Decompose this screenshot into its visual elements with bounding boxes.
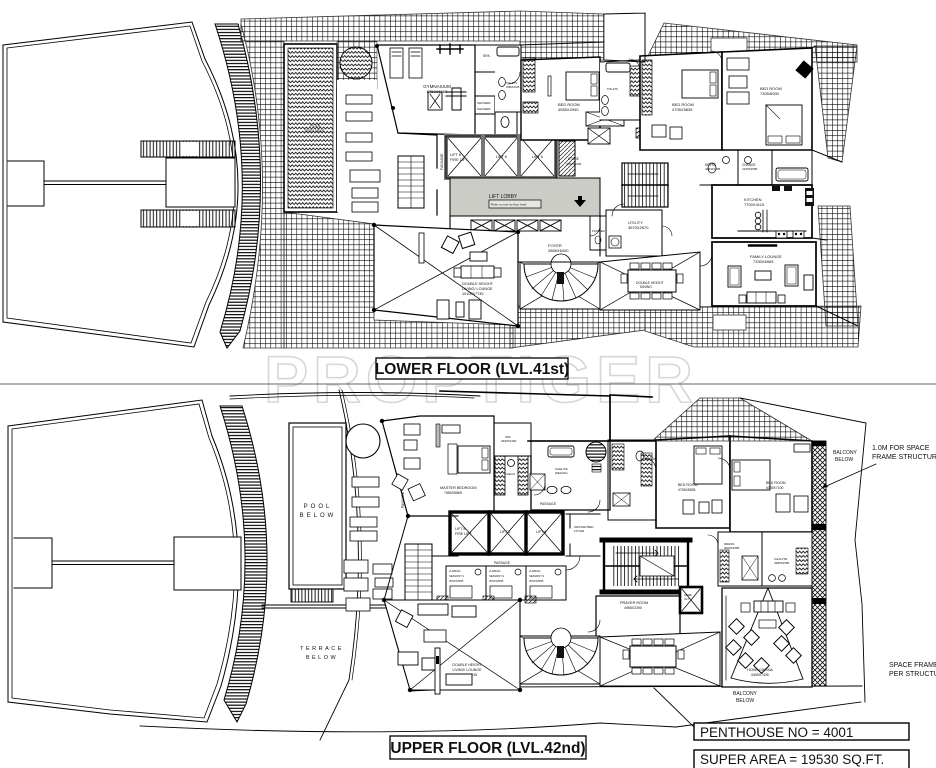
svg-text:BED ROOM: BED ROOM	[766, 481, 786, 485]
svg-text:WEILING: WEILING	[555, 471, 568, 475]
svg-text:3484X1585: 3484X1585	[705, 167, 721, 171]
svg-text:CHE/CO: CHE/CO	[505, 472, 515, 476]
svg-text:LIVING/ LOUNGE: LIVING/ LOUNGE	[462, 287, 493, 291]
svg-text:BED ROOM: BED ROOM	[678, 483, 698, 487]
svg-text:SERVANT 1: SERVANT 1	[449, 574, 465, 578]
svg-text:BALCONY: BALCONY	[733, 691, 758, 697]
svg-text:POWDER: POWDER	[592, 229, 605, 233]
svg-text:HOME: HOME	[684, 593, 692, 597]
svg-text:2515X2595: 2515X2595	[489, 579, 504, 583]
svg-text:SERVANT 3: SERVANT 3	[529, 574, 545, 578]
svg-text:PER STRUCTURE: PER STRUCTURE	[889, 671, 936, 678]
svg-text:7700X4115: 7700X4115	[744, 202, 765, 207]
svg-text:FOYER: FOYER	[574, 529, 585, 533]
svg-text:7500X18000: 7500X18000	[304, 129, 324, 133]
svg-text:FRAME STRUCTURE: FRAME STRUCTURE	[872, 454, 936, 461]
svg-text:3400X2400: 3400X2400	[501, 439, 517, 443]
svg-text:HOME CINEMA: HOME CINEMA	[747, 668, 773, 672]
svg-text:SHOWER: SHOWER	[477, 101, 491, 105]
svg-text:LUMINAI: LUMINAI	[529, 569, 541, 573]
svg-text:PASSAGE: PASSAGE	[494, 561, 511, 565]
svg-text:LIVING/ LOUNGE: LIVING/ LOUNGE	[453, 668, 483, 672]
svg-text:STORE: STORE	[568, 157, 579, 161]
svg-text:SPACE FRAME: SPACE FRAME	[889, 662, 936, 669]
svg-text:BELOW: BELOW	[300, 513, 337, 519]
svg-text:LIFT: LIFT	[684, 597, 690, 601]
svg-text:LIFT 5: LIFT 5	[500, 530, 510, 534]
svg-text:BELOW: BELOW	[736, 698, 754, 704]
svg-text:6305X7100: 6305X7100	[766, 486, 783, 490]
svg-text:PRAYER ROOM: PRAYER ROOM	[620, 601, 648, 605]
svg-text:PASSAGE: PASSAGE	[401, 491, 405, 508]
svg-text:LOWER FLOOR (LVL.41st): LOWER FLOOR (LVL.41st)	[375, 361, 569, 378]
svg-text:1.0M FOR SPACE: 1.0M FOR SPACE	[872, 445, 930, 452]
svg-text:2866X6000: 2866X6000	[548, 248, 569, 253]
svg-text:LIFT LOBBY: LIFT LOBBY	[489, 194, 518, 200]
svg-text:PASSAGE: PASSAGE	[440, 153, 444, 170]
svg-text:BELOW: BELOW	[306, 655, 338, 661]
svg-text:LIFT 8: LIFT 8	[455, 527, 465, 531]
svg-text:6355X7435: 6355X7435	[751, 673, 768, 677]
svg-text:UPPER FLOOR (LVL.42nd): UPPER FLOOR (LVL.42nd)	[390, 740, 585, 757]
svg-text:TOILETS: TOILETS	[607, 87, 618, 91]
svg-text:MASTER BEDROOM: MASTER BEDROOM	[440, 486, 477, 490]
svg-text:4985X2390: 4985X2390	[624, 606, 642, 610]
svg-text:TERRACE: TERRACE	[300, 646, 344, 652]
svg-text:7305/6000: 7305/6000	[760, 91, 780, 96]
svg-text:2050X1065: 2050X1065	[566, 162, 582, 166]
svg-text:3080X2435: 3080X2435	[506, 85, 520, 89]
svg-text:DINING: DINING	[640, 285, 652, 289]
svg-text:BALCONY: BALCONY	[833, 450, 858, 456]
svg-text:LUMINAI: LUMINAI	[449, 569, 461, 573]
svg-text:SHOWER: SHOWER	[477, 107, 491, 111]
svg-text:POOL: POOL	[304, 504, 333, 510]
svg-text:2515X2595: 2515X2595	[529, 579, 544, 583]
svg-text:3000X2685: 3000X2685	[724, 546, 740, 550]
svg-text:7330X6965: 7330X6965	[753, 259, 774, 264]
svg-text:LIFT 8: LIFT 8	[450, 153, 461, 157]
svg-text:4105X2685: 4105X2685	[742, 167, 758, 171]
svg-text:LIFT 6: LIFT 6	[496, 155, 507, 159]
svg-text:3670X2870: 3670X2870	[628, 225, 649, 230]
svg-text:DOUBLE HEIGHT: DOUBLE HEIGHT	[462, 282, 494, 286]
svg-text:Refer to note for floor level: Refer to note for floor level	[491, 203, 527, 207]
svg-text:2515X2595: 2515X2595	[449, 579, 464, 583]
svg-text:4985X2685: 4985X2685	[774, 561, 790, 565]
svg-text:4705X5835: 4705X5835	[678, 488, 695, 492]
svg-text:SERVANT 2: SERVANT 2	[489, 574, 505, 578]
svg-text:LUMINAI: LUMINAI	[489, 569, 501, 573]
svg-text:6750X6865: 6750X6865	[427, 89, 448, 94]
svg-text:PENTHOUSE NO = 4001: PENTHOUSE NO = 4001	[700, 725, 853, 740]
svg-text:BELOW: BELOW	[835, 457, 853, 463]
svg-text:SPA: SPA	[483, 54, 490, 58]
svg-text:PASSAGE: PASSAGE	[540, 502, 557, 506]
svg-text:10100X7745: 10100X7745	[462, 292, 484, 296]
svg-text:LIFT 6: LIFT 6	[532, 155, 543, 159]
svg-text:POOL: POOL	[310, 123, 322, 128]
svg-text:LIFT 6: LIFT 6	[536, 530, 546, 534]
svg-text:7650X5865: 7650X5865	[444, 491, 462, 495]
svg-text:DOUBLE HEIGHT: DOUBLE HEIGHT	[452, 663, 482, 667]
svg-text:FIRE LIFT: FIRE LIFT	[455, 532, 472, 536]
svg-text:SUPER AREA = 19530 SQ.FT.: SUPER AREA = 19530 SQ.FT.	[700, 752, 884, 767]
svg-text:4555X2940: 4555X2940	[558, 107, 579, 112]
svg-text:FIRE LIFT: FIRE LIFT	[450, 158, 468, 162]
svg-text:4705X5835: 4705X5835	[672, 107, 693, 112]
